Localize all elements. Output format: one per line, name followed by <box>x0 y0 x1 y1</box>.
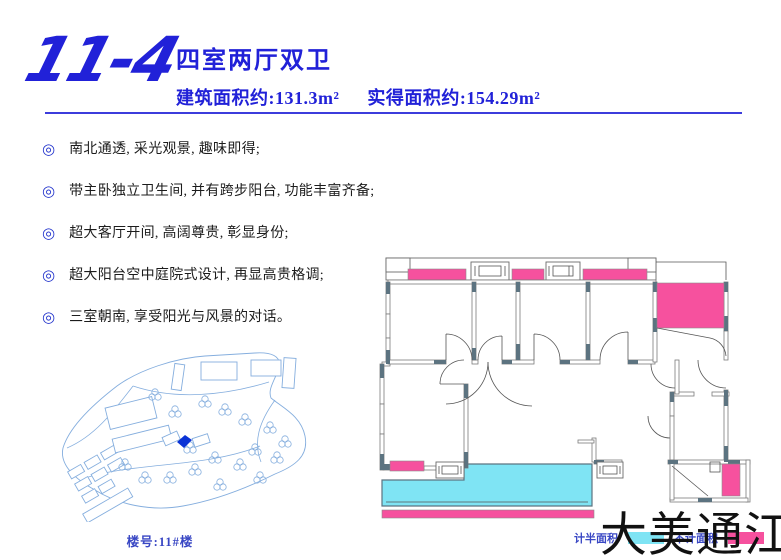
site-buildings-large <box>105 358 296 453</box>
unit-number: 11-4 <box>18 26 188 94</box>
built-area: 建筑面积约:131.3m² <box>176 88 339 108</box>
list-item: ◎三室朝南, 享受阳光与风景的对话。 <box>42 310 392 326</box>
list-item: ◎南北通透, 采光观景, 趣味即得; <box>42 142 392 158</box>
header-divider <box>45 112 742 114</box>
bay-window <box>408 269 466 280</box>
feature-list: ◎南北通透, 采光观景, 趣味即得; ◎带主卧独立卫生间, 并有跨步阳台, 功能… <box>42 142 392 352</box>
balcony-edge-strip <box>382 510 594 518</box>
bay-window <box>512 269 544 280</box>
floor-plan <box>378 256 752 520</box>
ac-unit <box>436 462 464 478</box>
entry-terrace <box>657 283 724 328</box>
kitchen-window <box>722 464 740 496</box>
feature-text: 带主卧独立卫生间, 并有跨步阳台, 功能丰富齐备; <box>69 184 374 200</box>
feature-text: 超大客厅开间, 高阔尊贵, 彰显身份; <box>69 226 289 242</box>
brand-wordmark: 大美通江 <box>600 496 781 560</box>
bullseye-icon: ◎ <box>42 142 55 158</box>
feature-text: 南北通透, 采光观景, 趣味即得; <box>69 142 260 158</box>
building-number-label: 楼号:11#楼 <box>75 531 245 550</box>
bullseye-icon: ◎ <box>42 226 55 242</box>
bedroom-window <box>390 461 424 471</box>
top-parapet <box>386 258 726 280</box>
feature-text: 三室朝南, 享受阳光与风景的对话。 <box>69 310 291 326</box>
header-block: 四室两厅双卫 建筑面积约:131.3m²实得面积约:154.29m² <box>176 40 568 110</box>
list-item: ◎超大客厅开间, 高阔尊贵, 彰显身份; <box>42 226 392 242</box>
site-buildings <box>61 445 141 522</box>
bullseye-icon: ◎ <box>42 310 55 326</box>
bullseye-icon: ◎ <box>42 184 55 200</box>
site-plan-map <box>55 350 320 522</box>
actual-area: 实得面积约:154.29m² <box>367 88 540 108</box>
list-item: ◎带主卧独立卫生间, 并有跨步阳台, 功能丰富齐备; <box>42 184 392 200</box>
ac-unit <box>597 462 623 478</box>
bay-window <box>583 269 647 280</box>
ac-unit <box>471 262 509 280</box>
bullseye-icon: ◎ <box>42 268 55 284</box>
area-line: 建筑面积约:131.3m²实得面积约:154.29m² <box>176 84 568 110</box>
brochure-page: 11-4 四室两厅双卫 建筑面积约:131.3m²实得面积约:154.29m² … <box>0 0 781 560</box>
page-title: 四室两厅双卫 <box>176 40 568 75</box>
feature-text: 超大阳台空中庭院式设计, 再显高贵格调; <box>69 268 324 284</box>
list-item: ◎超大阳台空中庭院式设计, 再显高贵格调; <box>42 268 392 284</box>
ac-unit <box>546 262 580 280</box>
